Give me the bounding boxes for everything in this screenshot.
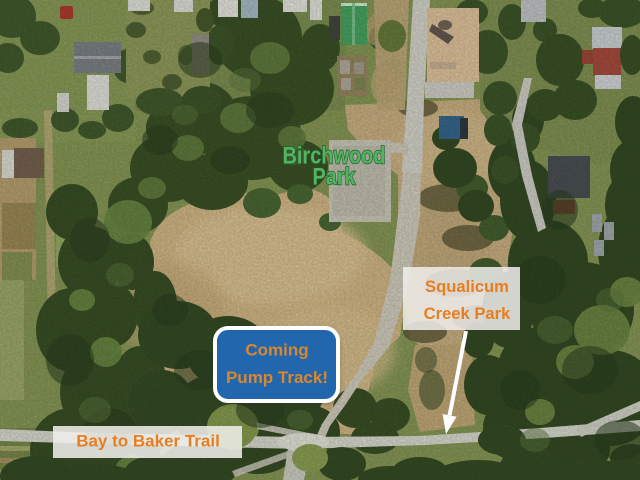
svg-text:Bay to Baker Trail: Bay to Baker Trail <box>76 432 220 451</box>
svg-text:Park: Park <box>313 164 356 191</box>
svg-text:Creek Park: Creek Park <box>424 304 511 323</box>
svg-text:Coming: Coming <box>245 341 308 360</box>
svg-text:Squalicum: Squalicum <box>425 277 509 296</box>
svg-text:Pump Track!: Pump Track! <box>226 368 328 387</box>
